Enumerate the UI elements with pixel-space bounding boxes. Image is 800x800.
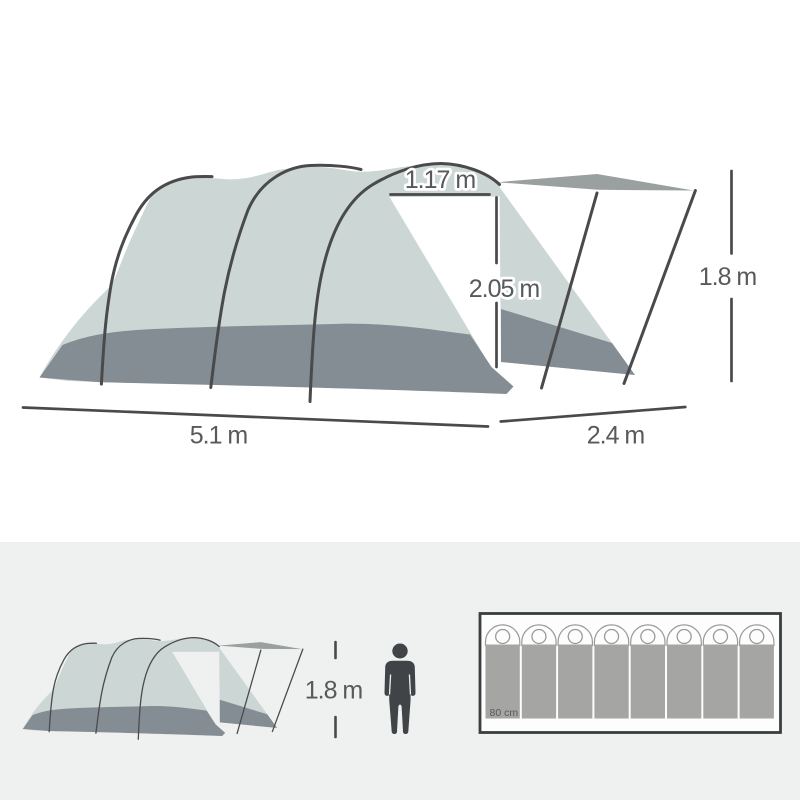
svg-text:80 cm: 80 cm [490,707,519,719]
svg-text:1.17 m: 1.17 m [405,166,476,194]
svg-text:2.05 m: 2.05 m [469,275,540,303]
svg-text:1.8 m: 1.8 m [305,677,363,705]
svg-text:5.1 m: 5.1 m [190,422,248,450]
svg-text:2.4 m: 2.4 m [587,422,645,450]
svg-text:1.8 m: 1.8 m [699,263,757,291]
